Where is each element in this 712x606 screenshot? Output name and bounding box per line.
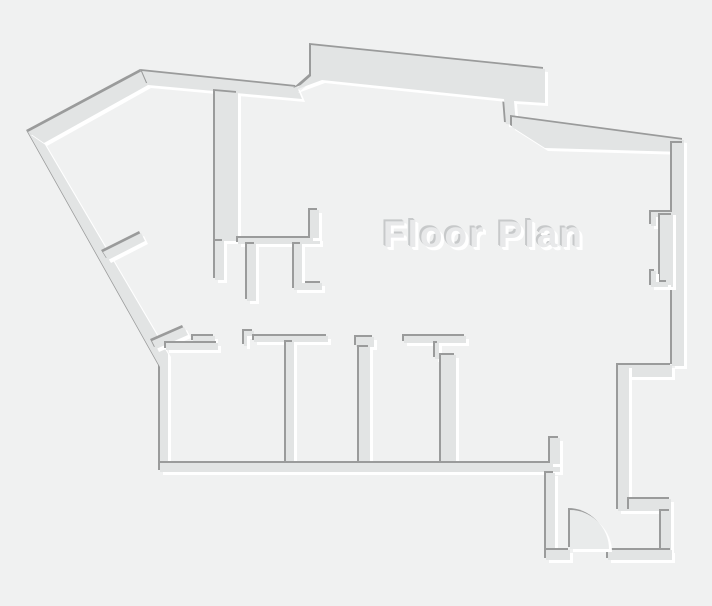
core-east-riser: [310, 210, 319, 238]
floor-plan-drawing: [0, 0, 712, 606]
entry-south-wall-right: [608, 550, 672, 560]
east-notch-top-wall: [629, 365, 672, 377]
outer-wall-west: [28, 132, 168, 472]
east-inner-wall: [618, 365, 629, 511]
room1-north-wall: [166, 343, 218, 350]
room-divider-3: [441, 355, 456, 466]
entry-north-stub: [550, 438, 560, 464]
entry-door-swing: [570, 510, 609, 549]
core-west-wall: [215, 91, 238, 241]
core-west-wall-stub: [215, 241, 224, 280]
outer-wall-northwest: [28, 71, 148, 143]
outer-wall-north-band: [295, 45, 545, 125]
room-divider-2: [359, 347, 370, 466]
core-door-jamb-2: [294, 244, 322, 290]
floor-plan-title: Floor Plan: [383, 214, 584, 256]
outer-wall-south: [160, 463, 560, 472]
east-window-band: [660, 215, 673, 287]
outer-wall-northeast: [512, 117, 684, 152]
room-divider-1: [286, 342, 294, 466]
outer-wall-west-highlight: [31, 135, 171, 475]
outer-wall-west-shadow: [26, 130, 166, 470]
entry-west-wall: [546, 473, 555, 551]
floor-plan-canvas: Floor Plan: [0, 0, 712, 606]
entry-south-wall-left: [546, 550, 570, 560]
core-door-jamb-1: [247, 244, 256, 301]
divider3-jamb: [435, 343, 439, 359]
entry-east-wall: [661, 511, 671, 551]
